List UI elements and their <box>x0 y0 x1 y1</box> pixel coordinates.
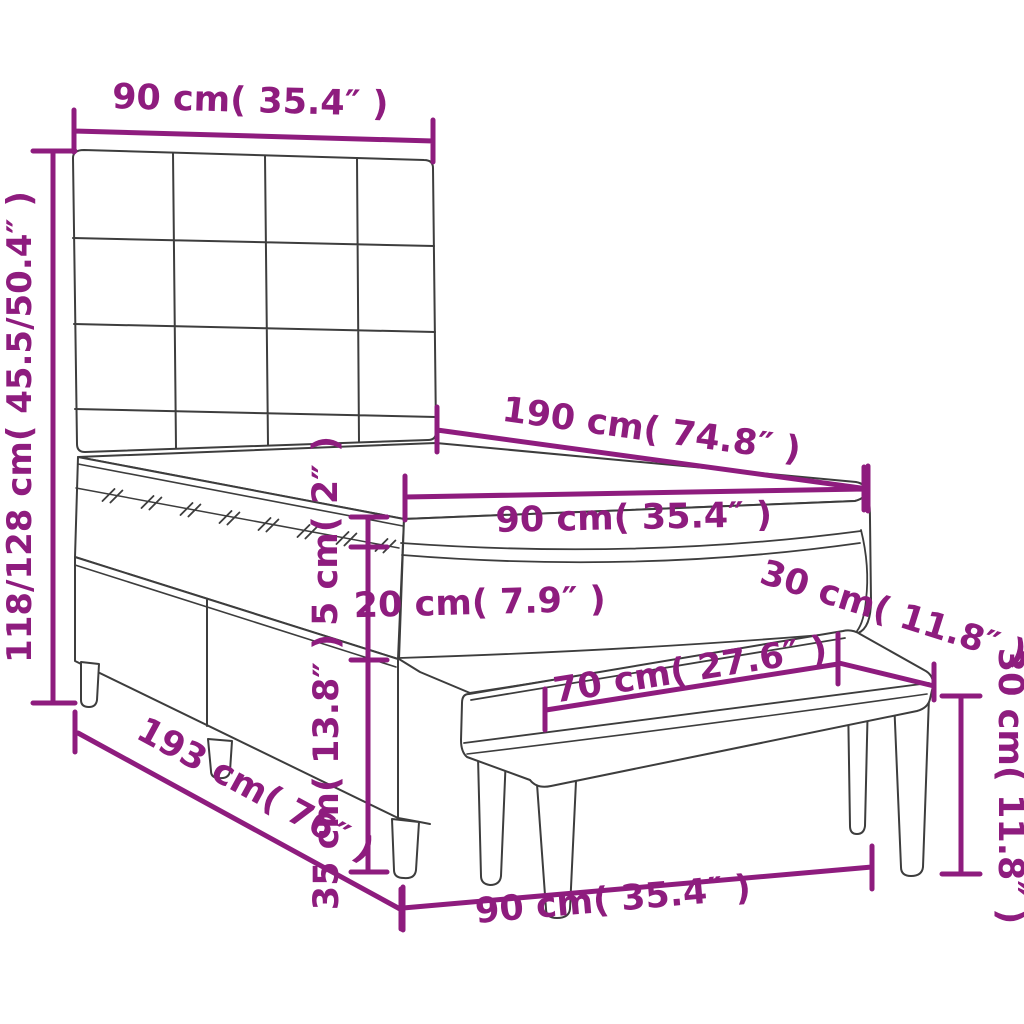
mattress-width-label: 90 cm( 35.4″ ) <box>495 495 772 541</box>
dim-bench-height <box>942 696 980 874</box>
bed-dimension-diagram: 90 cm( 35.4″ ) 118/128 cm( 45.5/50.4″ ) … <box>0 0 1024 1024</box>
diagram-canvas: 90 cm( 35.4″ ) 118/128 cm( 45.5/50.4″ ) … <box>0 0 1024 1024</box>
mattress-thickness-label: 20 cm( 7.9″ ) <box>353 580 606 627</box>
bench-height-label: 30 cm( 11.8″ ) <box>990 648 1024 924</box>
overall-height-label: 118/128 cm( 45.5/50.4″ ) <box>0 191 40 663</box>
headboard-panel <box>73 150 436 452</box>
bench-width-label: 90 cm( 35.4″ ) <box>474 868 753 932</box>
topper-thickness-label: 5 cm( 2″ ) <box>306 436 346 626</box>
bed-leg-right <box>392 819 419 878</box>
bench-leg-front-right <box>894 697 929 876</box>
bench-leg-back-left <box>478 755 506 885</box>
base-height-label: 35 cm( 13.8″ ) <box>307 634 347 910</box>
bed-leg-left <box>81 662 99 707</box>
headboard-width-label: 90 cm( 35.4″ ) <box>112 77 389 125</box>
